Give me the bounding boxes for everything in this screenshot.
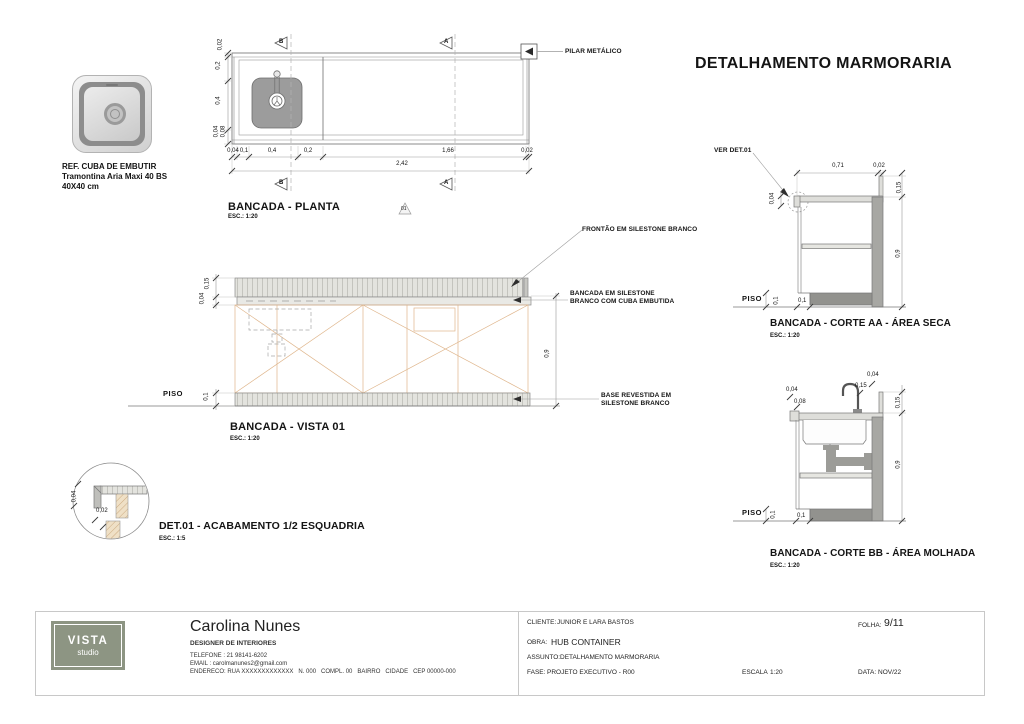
aa-dim-top: 0,71 [832, 163, 844, 170]
plan-dim-bottom-1: 0,1 [240, 148, 248, 155]
fase-label: FASE: [527, 669, 545, 677]
designer-phone: TELEFONE : 21 98141-6202 [190, 653, 267, 660]
bb-scale: ESC.: 1:20 [770, 563, 800, 570]
bb-title: BANCADA - CORTE BB - ÁREA MOLHADA [770, 548, 975, 560]
title-block [35, 611, 985, 696]
sink-basin [84, 87, 140, 141]
plan-detail-ref: 01 [401, 207, 407, 213]
plan-dim-bottom-3: 0,2 [304, 148, 312, 155]
det01-linework [71, 463, 149, 539]
plan-dim-left-0: 0,02 [217, 39, 224, 51]
det01-dim-b: 0,02 [96, 508, 108, 515]
vista-label-frontao: FRONTÃO EM SILESTONE BRANCO [582, 226, 697, 234]
vista-linework [128, 230, 599, 410]
aa-dim-top-edge: 0,02 [873, 163, 885, 170]
page-title: DETALHAMENTO MARMORARIA [695, 55, 952, 74]
bb-dim-height: 0,9 [896, 460, 903, 468]
obra-value: HUB CONTAINER [551, 637, 621, 647]
sink-ref-title: REF. CUBA DE EMBUTIR [62, 162, 156, 172]
det01-dim-a: 0,04 [71, 491, 78, 503]
designer-email: EMAIL : carolmanunes2@gmail.com [190, 661, 287, 668]
bb-piso-label: PISO [742, 509, 762, 518]
sink-ref-model: Tramontina Aria Maxi 40 BS [62, 172, 167, 182]
drawing-sheet: REF. CUBA DE EMBUTIR Tramontina Aria Max… [0, 0, 1024, 724]
bb-basin [803, 420, 866, 444]
vista-frontao-band [235, 278, 523, 297]
vista-dim-slab: 0,04 [199, 293, 206, 305]
aa-dim-toe-w: 0,1 [798, 298, 806, 305]
vista-label-bancada-2: BRANCO COM CUBA EMBUTIDA [570, 298, 674, 306]
vista-dim-base: 0,1 [204, 392, 211, 400]
assunto-label: ASSUNTO: [527, 654, 560, 662]
cliente-label: CLIENTE: [527, 619, 556, 627]
sink-drain [104, 103, 126, 125]
bb-dim-toe-w: 0,1 [797, 513, 805, 520]
sink-product-photo [72, 75, 152, 153]
corte-aa-linework [733, 153, 906, 310]
plan-dim-bottom-2: 0,4 [268, 148, 276, 155]
folha-label: FOLHA: [858, 622, 881, 630]
escala-label: ESCALA [742, 669, 768, 677]
det01-title: DET.01 - ACABAMENTO 1/2 ESQUADRIA [159, 520, 365, 532]
vista-base [235, 393, 530, 406]
vista-sink-hidden [249, 309, 311, 356]
vista-label-bancada-1: BANCADA EM SILESTONE [570, 290, 655, 298]
studio-logo-sub: studio [77, 648, 98, 657]
vista-piso-label: PISO [163, 390, 183, 399]
assunto-value: DETALHAMENTO MARMORARIA [560, 654, 659, 662]
vista-dim-body: 0,9 [545, 349, 552, 357]
plan-dim-bottom-5: 0,02 [521, 148, 533, 155]
escala-value: 1:20 [770, 669, 783, 677]
designer-address: ENDERECO: RUA XXXXXXXXXXXXX N. 000 COMPL… [190, 669, 456, 676]
designer-name: Carolina Nunes [190, 618, 300, 637]
aa-piso-label: PISO [742, 295, 762, 304]
plan-dim-bottom-4: 1,66 [442, 148, 454, 155]
cliente-value: JUNIOR E LARA BASTOS [557, 619, 634, 627]
plan-dim-bottom-0: 0,04 [227, 148, 239, 155]
bb-dim-edge: 0,04 [786, 387, 798, 394]
plan-marker-a-bottom: A [444, 180, 448, 187]
vista-label-base-2: SILESTONE BRANCO [601, 400, 670, 408]
aa-dim-toe-h: 0,1 [774, 296, 781, 304]
plan-marker-b-top: B [279, 39, 283, 46]
aa-dim-upstand: 0,15 [896, 182, 903, 194]
aa-base [810, 293, 872, 305]
vista-title: BANCADA - VISTA 01 [230, 421, 345, 434]
pillar-label: PILAR METÁLICO [565, 48, 622, 56]
plan-dim-left-1: 0,2 [216, 61, 223, 69]
vista-cabinet [235, 305, 528, 393]
det01-scale: ESC.: 1:5 [159, 536, 185, 543]
title-block-divider [518, 611, 519, 696]
plan-dim-left-2: 0,4 [216, 96, 223, 104]
bb-dim-apron: 0,08 [794, 399, 806, 406]
designer-role: DESIGNER DE INTERIORES [190, 640, 276, 648]
aa-wall [872, 197, 883, 307]
pillar-symbol [521, 44, 563, 59]
studio-logo-name: VISTA [68, 635, 109, 647]
aa-ver-det-label: VER DET.01 [714, 147, 752, 155]
vista-label-base-1: BASE REVESTIDA EM [601, 392, 671, 400]
folha-value: 9/11 [884, 617, 904, 629]
plan-scale: ESC.: 1:20 [228, 214, 258, 221]
aa-scale: ESC.: 1:20 [770, 333, 800, 340]
vista-dim-frontal: 0,15 [204, 278, 211, 290]
bb-dim-upstand: 0,15 [895, 397, 902, 409]
bb-trap [823, 445, 872, 472]
vista-bancada-strip [237, 297, 531, 305]
plan-marker-b-bottom: B [279, 180, 283, 187]
data-label: DATA: [858, 669, 876, 677]
bb-dim-faucet-h: 0,15 [855, 383, 867, 390]
plan-dim-total: 2,42 [396, 161, 408, 168]
fase-value: PROJETO EXECUTIVO - R00 [547, 669, 635, 677]
studio-logo: VISTA studio [51, 621, 125, 670]
corte-bb-linework [733, 381, 906, 524]
bb-base [810, 509, 872, 521]
bb-dim-faucet-off: 0,04 [867, 372, 879, 379]
vista-scale: ESC.: 1:20 [230, 436, 260, 443]
obra-label: OBRA: [527, 639, 547, 647]
aa-dim-height: 0,9 [896, 249, 903, 257]
aa-dim-slab: 0,04 [769, 193, 776, 205]
sink-tap-holes [106, 84, 118, 86]
data-value: NOV/22 [878, 669, 901, 677]
bb-dim-toe-h: 0,1 [771, 510, 778, 518]
bb-wall [872, 417, 883, 521]
plan-marker-a-top: A [444, 39, 448, 46]
sink-ref-size: 40X40 cm [62, 182, 99, 192]
plan-linework [224, 34, 563, 214]
plan-dim-left-4: 0,08 [220, 126, 227, 138]
aa-title: BANCADA - CORTE AA - ÁREA SECA [770, 318, 951, 330]
plan-title: BANCADA - PLANTA [228, 201, 340, 214]
